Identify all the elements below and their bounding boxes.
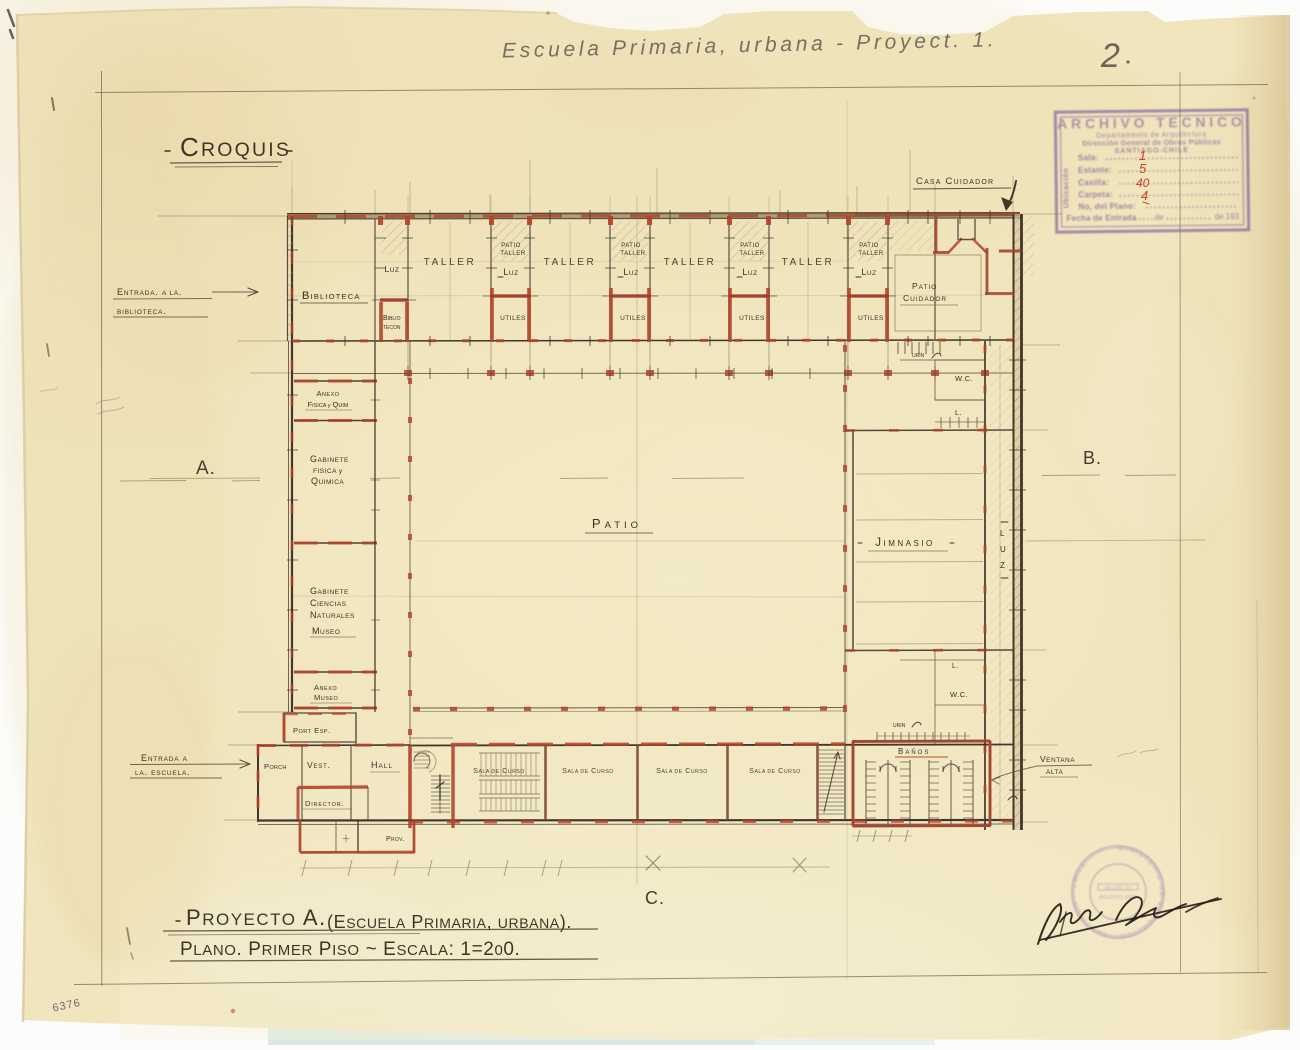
svg-text:Dirección General de Obras Púb: Dirección General de Obras Públicas	[1082, 137, 1221, 148]
svg-text:Ubicación: Ubicación	[1061, 168, 1070, 208]
svg-text:ARCHIVO TECNICO: ARCHIVO TECNICO	[1057, 113, 1246, 131]
svg-text:UTILES: UTILES	[858, 315, 884, 322]
svg-text:B.: B.	[1083, 448, 1102, 468]
svg-text:Sala:: Sala:	[1078, 153, 1099, 162]
svg-text:de: de	[1155, 213, 1165, 222]
svg-text:JIMNASIO: JIMNASIO	[875, 537, 935, 549]
svg-text:TALLER: TALLER	[739, 251, 764, 257]
svg-text:SANTIAGO-CHILE: SANTIAGO-CHILE	[1115, 147, 1189, 155]
svg-text:TALLER: TALLER	[620, 251, 645, 257]
svg-text:UTILES: UTILES	[500, 315, 526, 322]
svg-text:No, del Plano:: No, del Plano:	[1078, 202, 1136, 212]
svg-text:Estante:: Estante:	[1078, 165, 1112, 174]
svg-text:L: L	[1000, 529, 1005, 538]
svg-text:L.: L.	[955, 408, 962, 417]
svg-text:UTILES: UTILES	[739, 315, 765, 322]
svg-text:FISICA y: FISICA y	[313, 468, 343, 475]
svg-text:TALLER: TALLER	[500, 251, 525, 257]
svg-text:URIN: URIN	[893, 723, 906, 729]
svg-text:URIN: URIN	[912, 353, 925, 359]
svg-text:Carpeta:: Carpeta:	[1078, 190, 1113, 199]
svg-text:W.C.: W.C.	[955, 374, 973, 383]
svg-text:BIBLIOTECA: BIBLIOTECA	[302, 290, 361, 302]
svg-text:PATIO: PATIO	[501, 243, 521, 249]
svg-text:C.: C.	[645, 888, 665, 908]
svg-text:4: 4	[1141, 188, 1148, 203]
svg-text:PLANO. PRIMER PISO ~ ESCALA: 1: PLANO. PRIMER PISO ~ ESCALA: 1=200.	[180, 939, 520, 960]
svg-text:A.: A.	[196, 458, 216, 479]
svg-text:TALLER: TALLER	[858, 251, 883, 257]
svg-text:W.C.: W.C.	[950, 690, 968, 699]
svg-text:PROV.: PROV.	[386, 836, 405, 843]
svg-text:5: 5	[1139, 161, 1147, 176]
svg-text:Fecha de Entrada: Fecha de Entrada	[1067, 213, 1137, 223]
svg-text:L.: L.	[952, 663, 959, 670]
svg-text:de 193: de 193	[1215, 212, 1240, 221]
svg-text:Z: Z	[1000, 561, 1005, 570]
svg-text:RECIB. 07: RECIB. 07	[1105, 886, 1131, 892]
svg-text:PATIO: PATIO	[621, 243, 641, 249]
svg-text:TALLER: TALLER	[424, 257, 477, 268]
svg-text:TALLER: TALLER	[544, 257, 597, 268]
svg-text:ALTA: ALTA	[1046, 769, 1063, 776]
svg-text:TALLER: TALLER	[782, 257, 835, 268]
svg-text:TECON: TECON	[383, 325, 401, 331]
svg-text:U: U	[1000, 545, 1006, 554]
svg-text:2: 2	[1100, 37, 1120, 75]
svg-text:UTILES: UTILES	[620, 315, 646, 322]
svg-text:TALLER: TALLER	[664, 257, 717, 268]
svg-text:Casilla:: Casilla:	[1078, 178, 1109, 187]
svg-text:BIBLIO: BIBLIO	[383, 315, 401, 322]
svg-text:PATIO: PATIO	[859, 243, 879, 249]
svg-text:PATIO: PATIO	[740, 243, 760, 249]
